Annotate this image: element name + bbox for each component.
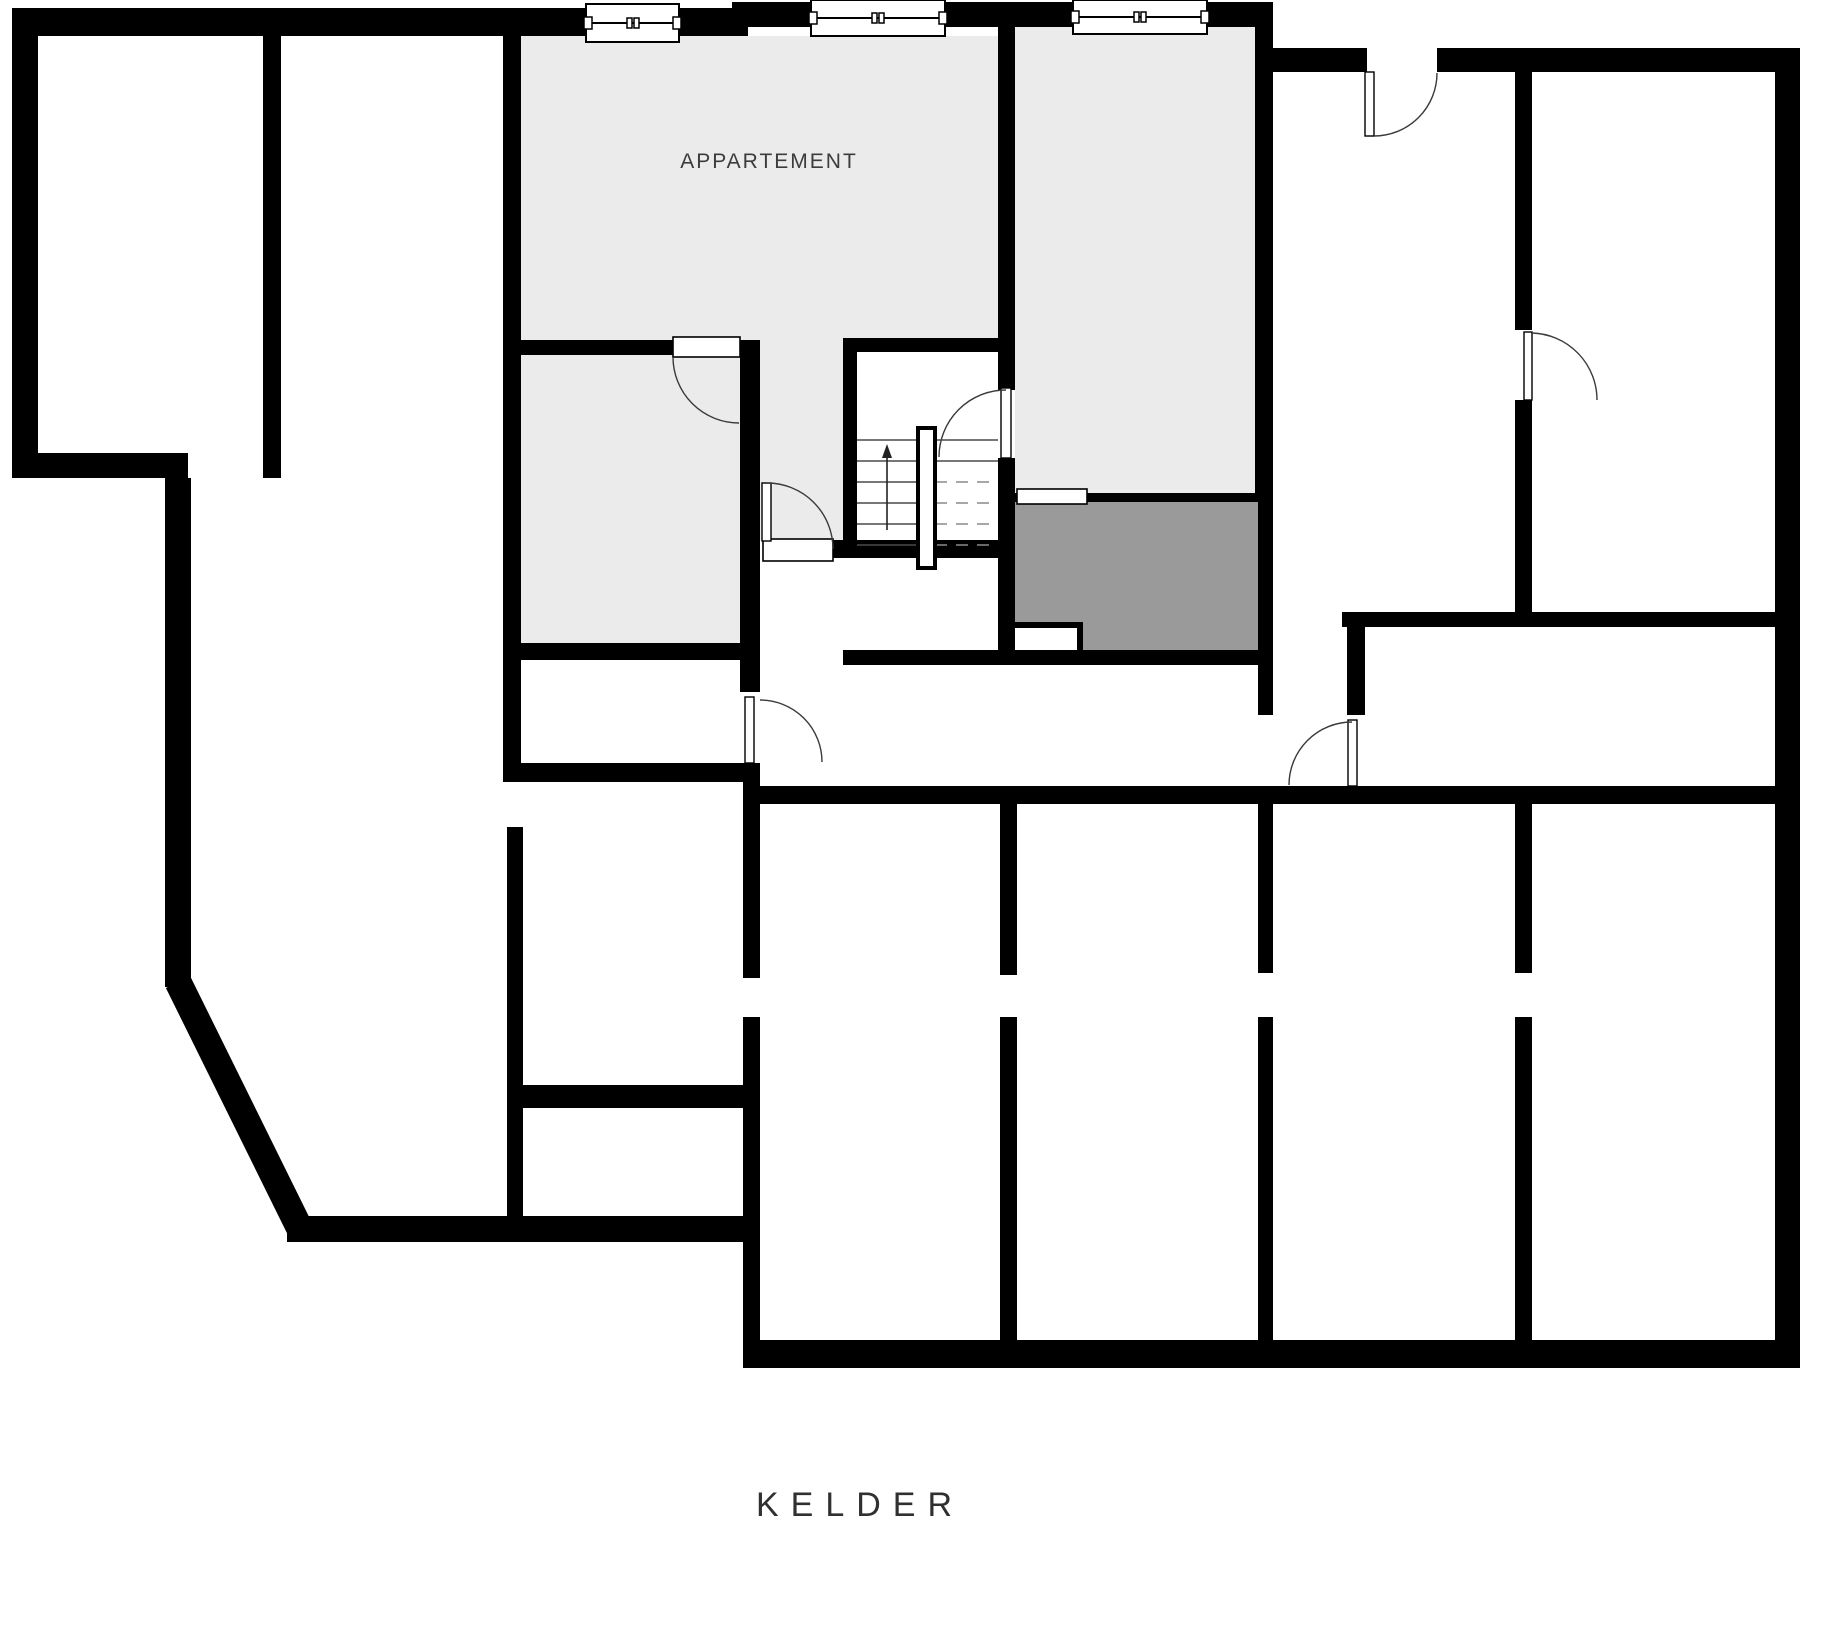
wall-smallroom-north [507,1085,743,1108]
wall-corridor-north-right [1342,612,1800,627]
outer-wall-top-1a [12,8,588,36]
window-symbol-3 [1071,0,1209,34]
floor-title: KELDER [756,1486,964,1524]
door-sill [763,539,833,561]
window-symbol-1 [584,4,681,42]
outer-wall-top-3b [1437,48,1800,72]
door-sill [1017,489,1087,504]
wall-topright-divider-b [1515,400,1532,612]
wall-darkroom-east [1258,493,1273,715]
outer-wall-left-upper [12,8,38,453]
wall-stair-east-b [998,458,1015,653]
wall-stair-north [843,338,1015,352]
door-leaf [762,483,771,541]
outer-wall-top-3a [1270,48,1367,72]
wall-niche-right [1077,628,1083,652]
wall-smallroom-west [507,827,523,1216]
wall-apartment-south-a [503,340,673,355]
door-leaf [1365,72,1374,136]
wall-darkroom-north-b [1087,493,1258,502]
window-symbol-2 [809,0,947,36]
apartment-side-room-fill [521,355,740,643]
wall-sideroom-east-upper [740,355,760,692]
apartment-label: APPARTEMENT [680,150,858,173]
wall-bottom-div4-upper [1515,804,1532,973]
outer-wall-top-2b [943,2,1075,27]
outer-wall-left-lower [165,478,191,987]
apartment-hall-fill [760,340,843,541]
outer-wall-bottom-left [287,1216,743,1242]
door-leaf [1348,720,1357,786]
door-leaf [1001,388,1011,458]
stair-rail [918,428,935,568]
wall-topleft-divider [263,36,281,478]
wall-hall-east-stub [1347,627,1365,715]
door-leaf [745,697,754,763]
outer-wall-right [1775,48,1800,1362]
wall-hall-south [843,650,1273,665]
wall-bottom-div3-upper [1258,804,1273,973]
wall-rightroom-west-upper [998,26,1015,352]
outer-wall-bottom [743,1340,1800,1368]
outer-wall-top-2a [732,2,813,27]
apartment-main-room-fill [521,36,998,340]
wall-apartment-south-b [740,340,760,355]
wall-striproom-south [503,763,760,782]
wall-corridor-south [760,786,1775,804]
wall-apartment-left [503,36,521,782]
dark-room-niche [1015,628,1077,652]
apartment-right-room-fill [1015,27,1255,493]
floorplan-basement: APPARTEMENT KELDER [0,0,1823,1625]
wall-bottom-div2-upper [1000,804,1017,975]
wall-bottom-div1-lower [743,1017,760,1340]
wall-sideroom-south [503,643,760,660]
wall-stair-east-a [998,352,1015,390]
door-leaf [1524,332,1532,400]
floorplan-canvas: APPARTEMENT KELDER [0,0,1823,1625]
outer-wall-notch [12,453,188,478]
wall-topright-divider-a [1515,72,1532,330]
wall-stair-west [843,352,857,558]
wall-bottom-div3-lower [1258,1017,1273,1340]
wall-rightroom-east [1255,27,1273,493]
wall-bottom-div4-lower [1515,1017,1532,1340]
door-darkroom-opening [1017,489,1087,504]
wall-bottom-div1-upper [743,782,760,978]
door-sill [673,337,740,357]
wall-bottom-div2-lower [1000,1017,1017,1340]
wall-niche-top [1015,622,1083,628]
